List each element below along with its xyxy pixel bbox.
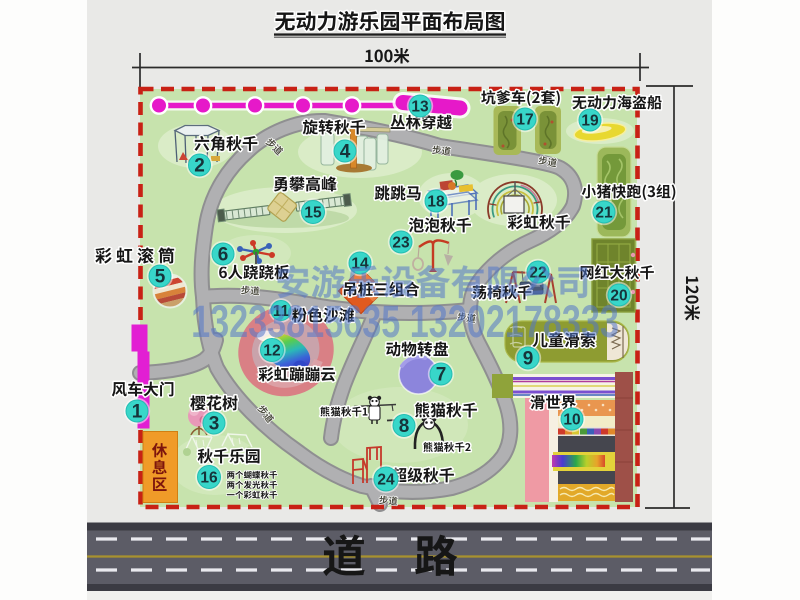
svg-text:17: 17 — [516, 112, 533, 129]
svg-text:13: 13 — [411, 99, 429, 116]
svg-text:3: 3 — [209, 414, 220, 435]
svg-text:8: 8 — [399, 416, 410, 437]
svg-text:1: 1 — [132, 402, 143, 423]
svg-text:6: 6 — [218, 245, 229, 266]
svg-text:7: 7 — [436, 365, 447, 386]
svg-text:13233815635 13202178333: 13233815635 13202178333 — [191, 298, 619, 348]
svg-text:21: 21 — [595, 205, 613, 222]
svg-text:24: 24 — [377, 472, 395, 489]
svg-text:4: 4 — [340, 142, 351, 163]
svg-text:15: 15 — [304, 205, 322, 222]
svg-text:18: 18 — [427, 194, 445, 211]
svg-text:10: 10 — [563, 412, 580, 429]
svg-text:23: 23 — [392, 235, 410, 252]
svg-text:16: 16 — [200, 470, 218, 487]
svg-text:5: 5 — [155, 267, 166, 288]
svg-text:9: 9 — [523, 349, 534, 370]
svg-text:2: 2 — [194, 156, 205, 177]
svg-text:19: 19 — [581, 113, 599, 130]
